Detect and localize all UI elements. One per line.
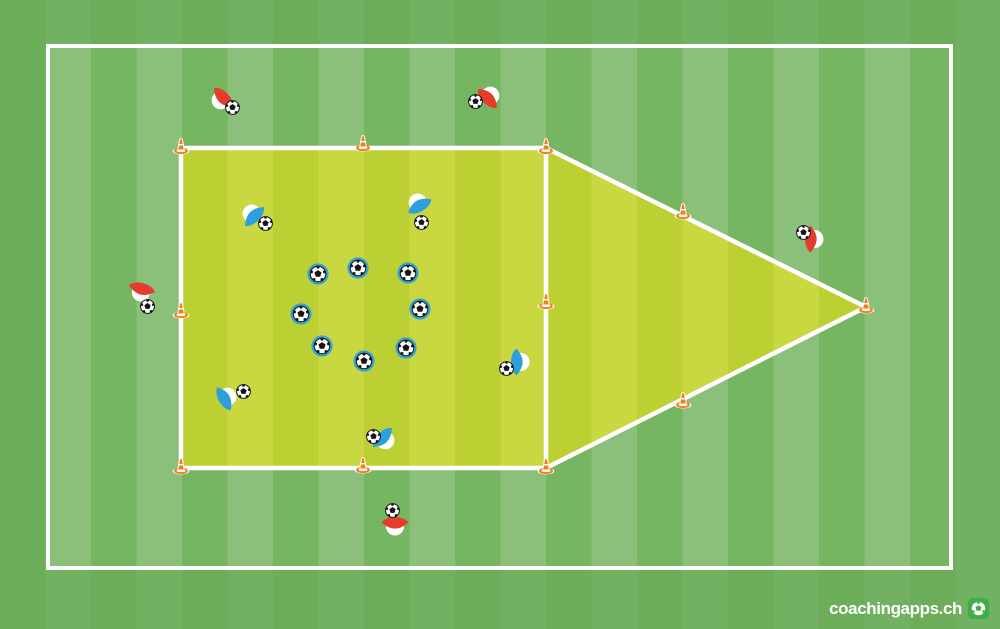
field-margin-overlay xyxy=(953,44,1000,570)
drill-canvas: coachingapps.ch xyxy=(0,0,1000,629)
logo-ball-icon xyxy=(968,598,989,619)
logo-text: coachingapps.ch xyxy=(829,600,962,617)
cone-marker[interactable] xyxy=(353,134,373,152)
soccer-ball[interactable] xyxy=(796,225,811,240)
soccer-ball[interactable] xyxy=(366,429,381,444)
cone-marker[interactable] xyxy=(171,301,191,319)
cone-marker[interactable] xyxy=(171,457,191,475)
soccer-ball[interactable] xyxy=(225,100,240,115)
cone-marker[interactable] xyxy=(536,457,556,475)
logo: coachingapps.ch xyxy=(829,598,989,619)
cone-marker[interactable] xyxy=(171,137,191,155)
soccer-ball[interactable] xyxy=(414,215,429,230)
soccer-ball-ringed[interactable] xyxy=(395,337,417,359)
soccer-ball-ringed[interactable] xyxy=(409,298,431,320)
cone-marker[interactable] xyxy=(856,296,876,314)
field-margin-overlay xyxy=(0,44,46,570)
cone-marker[interactable] xyxy=(353,456,373,474)
soccer-ball-ringed[interactable] xyxy=(347,257,369,279)
cone-marker[interactable] xyxy=(536,137,556,155)
field-margin-overlay xyxy=(0,0,1000,44)
soccer-ball[interactable] xyxy=(236,384,251,399)
soccer-ball[interactable] xyxy=(385,503,400,518)
soccer-ball-ringed[interactable] xyxy=(307,263,329,285)
soccer-ball-ringed[interactable] xyxy=(311,335,333,357)
soccer-ball[interactable] xyxy=(468,94,483,109)
soccer-ball[interactable] xyxy=(258,216,273,231)
soccer-ball-ringed[interactable] xyxy=(397,262,419,284)
soccer-ball[interactable] xyxy=(499,361,514,376)
soccer-ball-ringed[interactable] xyxy=(290,303,312,325)
cone-marker[interactable] xyxy=(673,202,693,220)
cone-marker[interactable] xyxy=(673,391,693,409)
cone-marker[interactable] xyxy=(536,292,556,310)
soccer-ball-ringed[interactable] xyxy=(353,350,375,372)
soccer-ball[interactable] xyxy=(140,299,155,314)
